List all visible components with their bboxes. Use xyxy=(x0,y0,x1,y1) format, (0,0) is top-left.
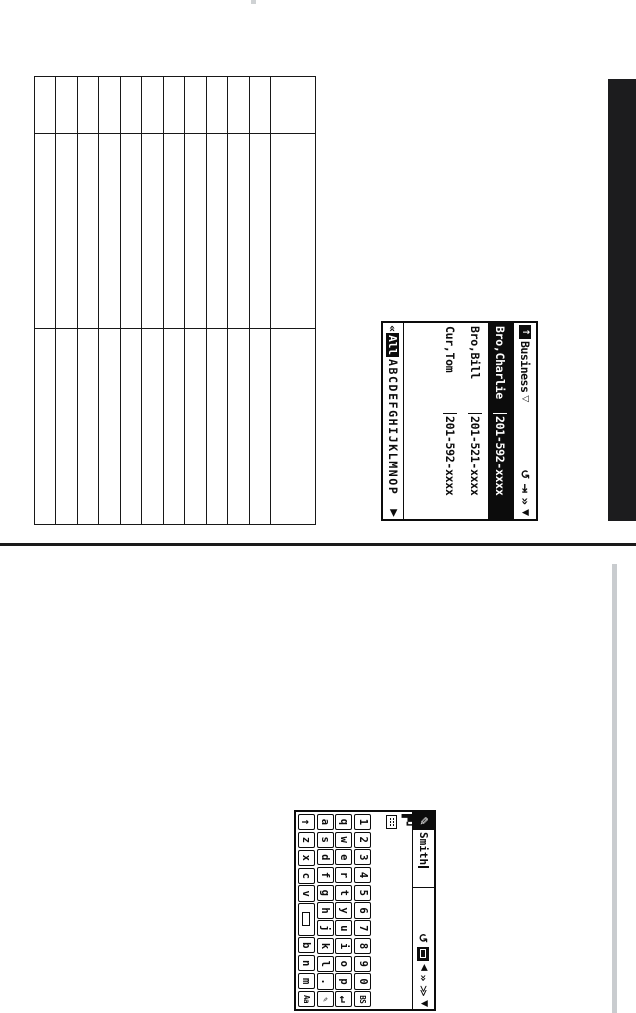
key-e: e xyxy=(335,849,352,865)
folder-name-label: Business xyxy=(518,341,532,392)
entry-name: Cur,Tom xyxy=(444,323,458,413)
keypad-grid-icon xyxy=(386,815,397,829)
key-v: v xyxy=(298,885,315,901)
worksheet-cell xyxy=(271,77,315,134)
worksheet-cell xyxy=(121,134,142,329)
key-x: x xyxy=(298,850,315,866)
key-backspace: BS xyxy=(354,991,371,1007)
keyboard-toolbar: ↺ ◀ » ≫ ▼ xyxy=(418,933,430,1009)
worksheet-cell xyxy=(228,77,249,134)
worksheet-cell xyxy=(250,329,271,524)
keyboard-row: ↑zxcvbnmAa xyxy=(297,813,316,1008)
key-5: 5 xyxy=(354,885,371,901)
page-forward-icon: » xyxy=(418,974,429,981)
worksheet-cell xyxy=(142,134,163,329)
entry-number: 201-521-xxxx xyxy=(469,413,483,519)
worksheet-cell xyxy=(142,77,163,134)
key-t: t xyxy=(335,885,352,901)
keyboard-row: asdfghjkl.✎ xyxy=(316,813,335,1008)
key-case: Aa xyxy=(298,991,315,1007)
entry-display-area: ▛┛ xyxy=(372,812,412,1009)
phonebook-entry-row: Bro,Charlie201-592-xxxx xyxy=(488,323,513,519)
worksheet-cell xyxy=(56,134,77,329)
keyboard-screen-figure: ✎ Smith ↺ ◀ » ≫ ▼ ▛┛ 1234567890BSqwertyu… xyxy=(294,810,436,1011)
keyboard-row: 1234567890BS xyxy=(353,813,372,1008)
entry-name: Bro,Charlie xyxy=(494,323,508,413)
key-i: i xyxy=(335,938,352,954)
worksheet-cell xyxy=(207,329,228,524)
name-entry-value: Smith xyxy=(417,832,430,865)
worksheet-cell xyxy=(271,329,315,524)
scroll-down-icon: ▼ xyxy=(419,1000,428,1007)
phonebook-toolbar: ↺ ⇥ » ▼ xyxy=(519,469,531,517)
folder-dropdown-icon: ▽ xyxy=(521,395,530,402)
phonebook-entry-list: Bro,Charlie201-592-xxxxBro,Bill201-521-x… xyxy=(404,323,513,519)
index-letters: ABCDEFGHIJKLMNOP xyxy=(386,359,400,495)
worksheet-cell xyxy=(185,134,206,329)
worksheet-cell xyxy=(35,329,56,524)
phonebook-entry-row: Bro,Bill201-521-xxxx xyxy=(463,323,488,519)
key-l: l xyxy=(317,956,334,972)
phonebook-title-bar: ↑ Business ▽ ↺ ⇥ » ▼ xyxy=(513,323,536,519)
key-g: g xyxy=(317,885,334,901)
phonebook-screen-figure: ↑ Business ▽ ↺ ⇥ » ▼ Bro,Charlie201-592-… xyxy=(381,321,538,521)
key-symbols: ✎ xyxy=(317,991,334,1007)
tab-next-icon: ⇥ xyxy=(519,483,531,493)
entry-number: 201-592-xxxx xyxy=(444,413,458,519)
entry-number: 201-592-xxxx xyxy=(494,413,508,519)
alphabet-index-bar: « All ABCDEFGHIJKLMNOP ▶ xyxy=(383,323,404,519)
key-j: j xyxy=(317,920,334,936)
worksheet-cell xyxy=(164,329,185,524)
keyboard-title-bar: ✎ Smith ↺ ◀ » ≫ ▼ xyxy=(412,812,434,1009)
page-forward-outline-icon: ≫ xyxy=(418,985,429,997)
key-9: 9 xyxy=(354,956,371,972)
worksheet-cell xyxy=(78,329,99,524)
key-o: o xyxy=(335,956,352,972)
keyboard-row: qwertyuiop↵ xyxy=(335,813,354,1008)
worksheet-cell xyxy=(185,77,206,134)
key-6: 6 xyxy=(354,902,371,918)
name-entry-field: Smith xyxy=(413,830,434,888)
worksheet-cell xyxy=(142,329,163,524)
key-3: 3 xyxy=(354,849,371,865)
key-1: 1 xyxy=(354,814,371,830)
return-icon: ↺ xyxy=(519,469,531,479)
worksheet-cell xyxy=(271,134,315,329)
key-.: . xyxy=(317,973,334,989)
worksheet-cell xyxy=(164,77,185,134)
worksheet-cell xyxy=(78,134,99,329)
return-icon: ↺ xyxy=(418,933,430,943)
index-back-icon: « xyxy=(388,325,399,332)
space-bar-glyph xyxy=(302,912,310,926)
key-enter: ↵ xyxy=(335,991,352,1007)
worksheet-cell xyxy=(35,134,56,329)
worksheet-cell xyxy=(121,329,142,524)
chapter-tab-bar xyxy=(608,79,636,521)
worksheet-cell xyxy=(207,134,228,329)
worksheet-cell xyxy=(228,329,249,524)
worksheet-cell xyxy=(35,77,56,134)
empty-list-space xyxy=(404,323,438,519)
input-mode-icon: ▛┛ xyxy=(401,814,411,828)
key-p: p xyxy=(335,973,352,989)
blank-worksheet-table xyxy=(34,76,316,525)
worksheet-cell xyxy=(78,77,99,134)
key-2: 2 xyxy=(354,832,371,848)
worksheet-cell xyxy=(121,77,142,134)
key-n: n xyxy=(298,955,315,971)
cursor-left-icon: ◀ xyxy=(419,964,428,971)
key-0: 0 xyxy=(354,973,371,989)
scanned-manual-page: ↑ Business ▽ ↺ ⇥ » ▼ Bro,Charlie201-592-… xyxy=(0,0,636,1013)
key-shift: ↑ xyxy=(298,814,315,830)
worksheet-cell xyxy=(99,329,120,524)
key-s: s xyxy=(317,832,334,848)
worksheet-cell xyxy=(228,134,249,329)
key-w: w xyxy=(335,832,352,848)
margin-gray-rule xyxy=(612,564,617,1013)
key-z: z xyxy=(298,832,315,848)
worksheet-cell xyxy=(56,329,77,524)
worksheet-cell xyxy=(164,134,185,329)
key-a: a xyxy=(317,814,334,830)
key-f: f xyxy=(317,867,334,883)
key-m: m xyxy=(298,973,315,989)
scan-registration-mark xyxy=(251,0,256,4)
key-k: k xyxy=(317,938,334,954)
edit-pencil-icon: ✎ xyxy=(413,812,434,830)
worksheet-cell xyxy=(185,329,206,524)
key-4: 4 xyxy=(354,867,371,883)
key-7: 7 xyxy=(354,920,371,936)
section-divider-rule xyxy=(0,543,636,546)
keyboard-toggle-icon xyxy=(418,947,430,961)
key-space xyxy=(298,903,315,935)
worksheet-cell xyxy=(99,77,120,134)
key-y: y xyxy=(335,902,352,918)
worksheet-cell xyxy=(207,77,228,134)
index-forward-icon: ▶ xyxy=(388,509,398,517)
worksheet-cell xyxy=(56,77,77,134)
worksheet-cell xyxy=(250,134,271,329)
worksheet-cell xyxy=(250,77,271,134)
key-r: r xyxy=(335,867,352,883)
key-8: 8 xyxy=(354,938,371,954)
key-h: h xyxy=(317,902,334,918)
scroll-down-icon: ▼ xyxy=(521,509,530,516)
phonebook-entry-row: Cur,Tom201-592-xxxx xyxy=(438,323,463,519)
entry-name: Bro,Bill xyxy=(469,323,483,413)
key-q: q xyxy=(335,814,352,830)
text-cursor xyxy=(418,866,429,868)
onscreen-keyboard: 1234567890BSqwertyuiop↵asdfghjkl.✎↑zxcvb… xyxy=(296,812,372,1009)
folder-icon: ↑ xyxy=(519,325,531,339)
index-all-tab: All xyxy=(387,333,400,357)
page-forward-icon: » xyxy=(519,497,531,505)
key-d: d xyxy=(317,849,334,865)
key-u: u xyxy=(335,920,352,936)
worksheet-cell xyxy=(99,134,120,329)
key-b: b xyxy=(298,937,315,953)
key-c: c xyxy=(298,868,315,884)
